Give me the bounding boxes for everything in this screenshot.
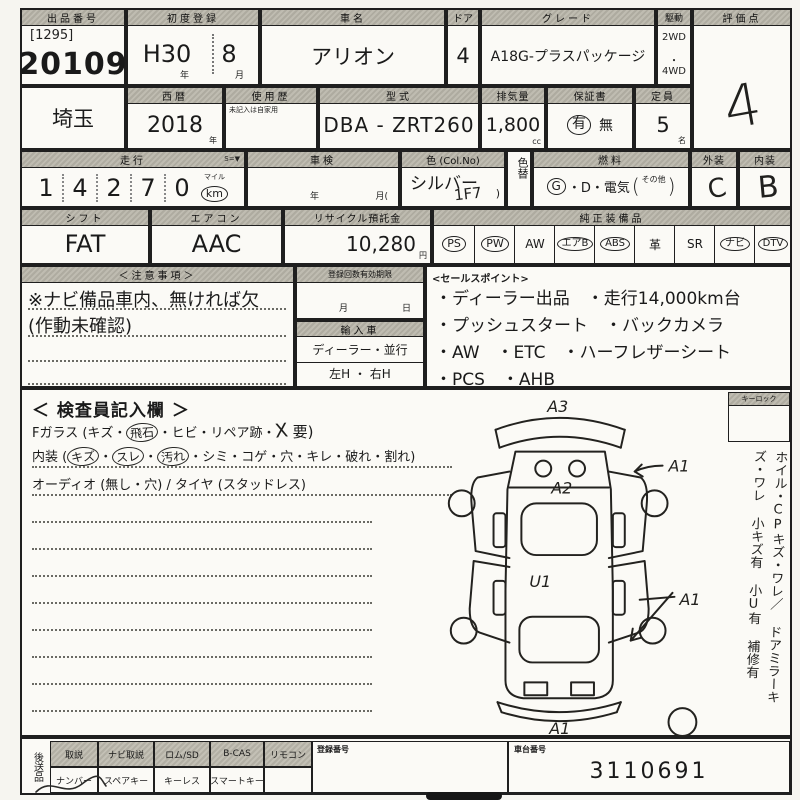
auction-number-cell: 出品番号 [1295] 20109: [20, 8, 126, 86]
diagram-label-rear-right: A1: [678, 590, 700, 609]
doors-header: ドア: [448, 10, 478, 26]
rom-sd-header: ロム/SD: [154, 741, 210, 767]
navi-manual-header: ナビ取説: [98, 741, 154, 767]
import-dealer-parallel: ディーラー・並行: [297, 336, 423, 363]
remote-empty-cell: [264, 767, 312, 793]
model-code-cell: 型式 DBA - ZRT260: [318, 86, 480, 150]
mileage-digit: 4: [64, 174, 98, 202]
dotted-rule: [32, 683, 372, 685]
year-cell: 西暦 2018 年: [126, 86, 224, 150]
glass-suffix: 要): [293, 423, 314, 441]
model-code-value: DBA - ZRT260: [320, 102, 478, 148]
score-header: 評価点: [694, 10, 790, 26]
mileage-digit: 7: [132, 174, 166, 202]
glass-circled-stone: 飛石: [126, 422, 159, 443]
equipment-cell: 純正装備品 PS PW AW エアB ABS 革 SR ナビ DTV: [432, 208, 792, 265]
displacement-cell: 排気量 1,800 cc: [480, 86, 546, 150]
recycle-deposit-value: 10,280: [285, 224, 416, 263]
pen-scribble-artifact: [30, 772, 110, 798]
dotted-rule: [28, 308, 286, 310]
sales-line: ・AW ・ETC ・ハーフレザーシート: [435, 338, 731, 363]
auction-sheet: 出品番号 [1295] 20109 初度登録 H30 8 年 月 車名 アリオン…: [0, 0, 800, 800]
warranty-options: 有 無: [548, 102, 632, 148]
interior-header: 内装: [740, 152, 790, 168]
dotted-rule: [28, 383, 286, 385]
key-lock-header: キーロック: [729, 393, 789, 406]
registration-validity-cell: 登録回数有効期限 月 日: [295, 265, 425, 320]
smart-key-cell: スマートキー: [210, 767, 264, 793]
import-handle-position: 左H ・ 右H: [297, 360, 423, 386]
inspector-header: ＜ 検査員記入欄 ＞: [32, 396, 190, 421]
dotted-rule: [32, 575, 372, 577]
chassis-number-cell: 車台番号 3110691: [508, 741, 790, 793]
manual-header: 取説: [50, 741, 98, 767]
mileage-header: 走行: [22, 152, 244, 168]
usage-history-cell: 使用歴 未記入は自家用: [224, 86, 318, 150]
scan-smudge-artifact: [426, 792, 502, 800]
sales-points-cell: <セールスポイント> ・ディーラー出品 ・走行14,000km台 ・プッシュスタ…: [425, 265, 792, 388]
grade-header: グレード: [482, 10, 654, 26]
doors-value: 4: [448, 28, 478, 84]
color-change-cell: 色替: [506, 150, 532, 208]
mileage-unit-block: マイル km: [201, 172, 228, 202]
score-handwritten: 4: [718, 69, 766, 142]
interior-grade-handwritten: B: [757, 169, 781, 206]
chassis-number-label: 車台番号: [514, 744, 546, 755]
exterior-grade-cell: 外装 C: [690, 150, 738, 208]
side-handwritten-notes: ホイル・CPキズ・ワレ／ ドアミラーキズ・ワレ 小キズ有 小U有 補修有: [738, 449, 790, 725]
grade-value: A18G-プラスパッケージ: [482, 28, 654, 84]
registration-number-label: 登録番号: [317, 744, 349, 755]
chassis-number-value: 3110691: [590, 759, 709, 784]
equipment-ps: PS: [434, 225, 474, 263]
mileage-cell: 走行 S=▼ 1 4 2 7 0 マイル km: [20, 150, 246, 208]
remote-header: リモコン: [264, 741, 312, 767]
side-note: 小U有: [745, 583, 761, 624]
import-car-cell: 輸入車 ディーラー・並行 左H ・ 右H: [295, 320, 425, 388]
glass-mid: ・ヒビ・リペア跡・: [158, 426, 275, 441]
recycle-deposit-cell: リサイクル預託金 10,280 円: [283, 208, 432, 265]
registration-validity-header: 登録回数有効期限: [297, 267, 423, 283]
prefecture-value: 埼玉: [22, 88, 124, 148]
equipment-leather: 革: [634, 225, 675, 263]
car-name-header: 車名: [262, 10, 444, 26]
diagram-label-front-right: A1: [668, 457, 690, 476]
equipment-header: 純正装備品: [434, 210, 790, 226]
bottom-table: 後送品 取説 ナビ取説 ロム/SD B-CAS リモコン ナンバー スペアキー …: [20, 737, 792, 795]
inspection-year-label: 年: [310, 189, 319, 202]
drive-4wd: 4WD: [658, 66, 690, 77]
equipment-navi: ナビ: [714, 225, 755, 263]
side-note: 補修有: [743, 639, 759, 678]
equipment-dtv: DTV: [754, 225, 791, 263]
diagram-label-roof: U1: [529, 572, 551, 591]
dotted-rule: [28, 335, 286, 337]
keyless-cell: キーレス: [154, 767, 210, 793]
first-reg-year-suffix: 年: [180, 68, 189, 81]
mileage-header-mark: S=▼: [224, 155, 240, 163]
fuel-paren-open: (: [632, 174, 640, 198]
dotted-rule: [32, 602, 372, 604]
dotted-rule: [28, 360, 286, 362]
shift-value: FAT: [22, 224, 148, 263]
inspection-cell: 車検 年 月(: [246, 150, 400, 208]
color-cell: 色 (Col.No) シルバー 1F7 ): [400, 150, 506, 208]
inspection-month-label: 月(: [375, 189, 388, 202]
fuel-other: その他: [642, 174, 666, 185]
color-code-handwritten: 1F7: [453, 184, 482, 205]
sales-line: ・プッシュスタート ・バックカメラ: [435, 311, 724, 336]
interior-circled-kizu: キズ: [67, 446, 100, 467]
first-registration-cell: 初度登録 H30 8 年 月: [126, 8, 260, 86]
auction-number-value: 20109: [22, 42, 124, 86]
drive-header: 駆動: [658, 10, 690, 26]
sales-points-header: <セールスポイント>: [432, 270, 529, 285]
equipment-abs: ABS: [594, 225, 635, 263]
equipment-pw: PW: [474, 225, 515, 263]
notice-header: ＜注意事項＞: [22, 267, 293, 283]
glass-prefix: Fガラス (キズ・: [32, 426, 126, 441]
dotted-rule: [32, 548, 372, 550]
fuel-value: G ・D・電気 ( その他 ): [534, 166, 688, 206]
interior-circled-sure: スレ: [112, 446, 145, 467]
key-lock-box: キーロック: [728, 392, 790, 442]
inspector-interior-line: 内装 (キズ・スレ・汚れ・シミ・コゲ・穴・キレ・破れ・割れ): [32, 446, 415, 466]
registration-number-cell: 登録番号: [312, 741, 508, 793]
fuel-gasoline-circled: G: [547, 178, 566, 195]
diagram-label-rear: A1: [548, 719, 570, 738]
prefecture-cell: 埼玉: [20, 86, 126, 150]
drive-2wd: 2WD: [658, 32, 690, 43]
first-reg-month-suffix: 月: [235, 68, 244, 81]
diagram-label-front: A3: [546, 397, 568, 416]
diagram-label-hood: A2: [550, 478, 572, 497]
exterior-header: 外装: [692, 152, 736, 168]
side-note: ホイル・CPキズ・ワレ／: [767, 450, 788, 610]
mileage-unit-km: km: [201, 186, 228, 202]
first-registration-header: 初度登録: [128, 10, 258, 26]
registration-day-label: 日: [402, 301, 411, 314]
interior-prefix: 内装 (: [32, 450, 67, 465]
inspector-glass-line: Fガラス (キズ・飛石・ヒビ・リペア跡・X 要): [32, 420, 313, 442]
drive-dot: ・: [658, 52, 690, 67]
usage-history-note: 未記入は自家用: [229, 105, 278, 115]
sales-line: ・PCS ・AHB: [435, 365, 555, 390]
first-reg-era: H30: [132, 34, 202, 74]
car-name-cell: 車名 アリオン: [260, 8, 446, 86]
score-cell: 評価点 4: [692, 8, 792, 150]
sales-line: ・ディーラー出品 ・走行14,000km台: [435, 284, 741, 309]
exterior-grade-handwritten: C: [705, 172, 729, 205]
notice-cell: ＜注意事項＞ ※ナビ備品車内、無ければ欠 (作動未確認): [20, 265, 295, 388]
capacity-unit: 名: [678, 135, 686, 146]
inspector-audio-line: オーディオ (無し・穴) / タイヤ (スタッドレス): [32, 474, 306, 493]
warranty-no: 無: [599, 115, 613, 135]
dotted-rule: [32, 494, 452, 496]
fuel-cell: 燃料 G ・D・電気 ( その他 ): [532, 150, 690, 208]
color-change-label: 色替: [508, 157, 530, 179]
equipment-aw: AW: [514, 225, 555, 263]
fuel-rest: ・D・電気: [568, 177, 630, 196]
displacement-unit: cc: [532, 137, 541, 146]
year-value: 2018: [128, 102, 222, 148]
equipment-sr: SR: [674, 225, 715, 263]
bcas-header: B-CAS: [210, 741, 264, 767]
fuel-paren-close: ): [668, 174, 676, 198]
dotted-rule: [32, 656, 372, 658]
color-paren: ): [496, 187, 500, 200]
doors-cell: ドア 4: [446, 8, 480, 86]
side-note: 小キズ有: [747, 516, 764, 568]
aircon-value: AAC: [152, 224, 281, 263]
car-damage-diagram: A3 A2 A1 U1 A1 A1: [447, 392, 727, 738]
mileage-digit: 2: [98, 174, 132, 202]
dotted-rule: [32, 521, 372, 523]
dotted-rule: [32, 466, 452, 468]
import-car-header: 輸入車: [297, 322, 423, 337]
capacity-cell: 定員 5 名: [634, 86, 692, 150]
mileage-digits: 1 4 2 7 0: [30, 170, 198, 206]
inspection-header: 車検: [248, 152, 398, 168]
mileage-digit: 0: [166, 174, 198, 202]
dotted-rule: [32, 629, 372, 631]
mileage-digit: 1: [30, 174, 64, 202]
auction-number-header: 出品番号: [22, 10, 124, 26]
year-suffix: 年: [209, 135, 217, 146]
interior-circled-yogore: 汚れ: [157, 446, 190, 467]
registration-month-label: 月: [339, 301, 348, 314]
auction-bracket: [1295]: [30, 28, 73, 43]
interior-sep: ・: [99, 450, 112, 465]
warranty-yes-circled: 有: [567, 115, 591, 135]
equipment-airbag: エアB: [554, 225, 595, 263]
drive-cell: 駆動 2WD ・ 4WD: [656, 8, 692, 86]
mileage-unit-top: マイル: [201, 172, 228, 182]
glass-x-mark: X: [274, 419, 289, 442]
warranty-cell: 保証書 有 無: [546, 86, 634, 150]
interior-sep: ・: [144, 450, 157, 465]
recycle-deposit-unit: 円: [419, 250, 427, 261]
shift-cell: シフト FAT: [20, 208, 150, 265]
grade-cell: グレード A18G-プラスパッケージ: [480, 8, 656, 86]
usage-history-header: 使用歴: [226, 88, 316, 104]
aircon-cell: エアコン AAC: [150, 208, 283, 265]
car-name-value: アリオン: [262, 28, 444, 84]
inspector-area: ＜ 検査員記入欄 ＞ Fガラス (キズ・飛石・ヒビ・リペア跡・X 要) 内装 (…: [20, 388, 792, 737]
interior-rest: ・シミ・コゲ・穴・キレ・破れ・割れ): [189, 450, 415, 465]
dotted-rule: [32, 710, 372, 712]
interior-grade-cell: 内装 B: [738, 150, 792, 208]
